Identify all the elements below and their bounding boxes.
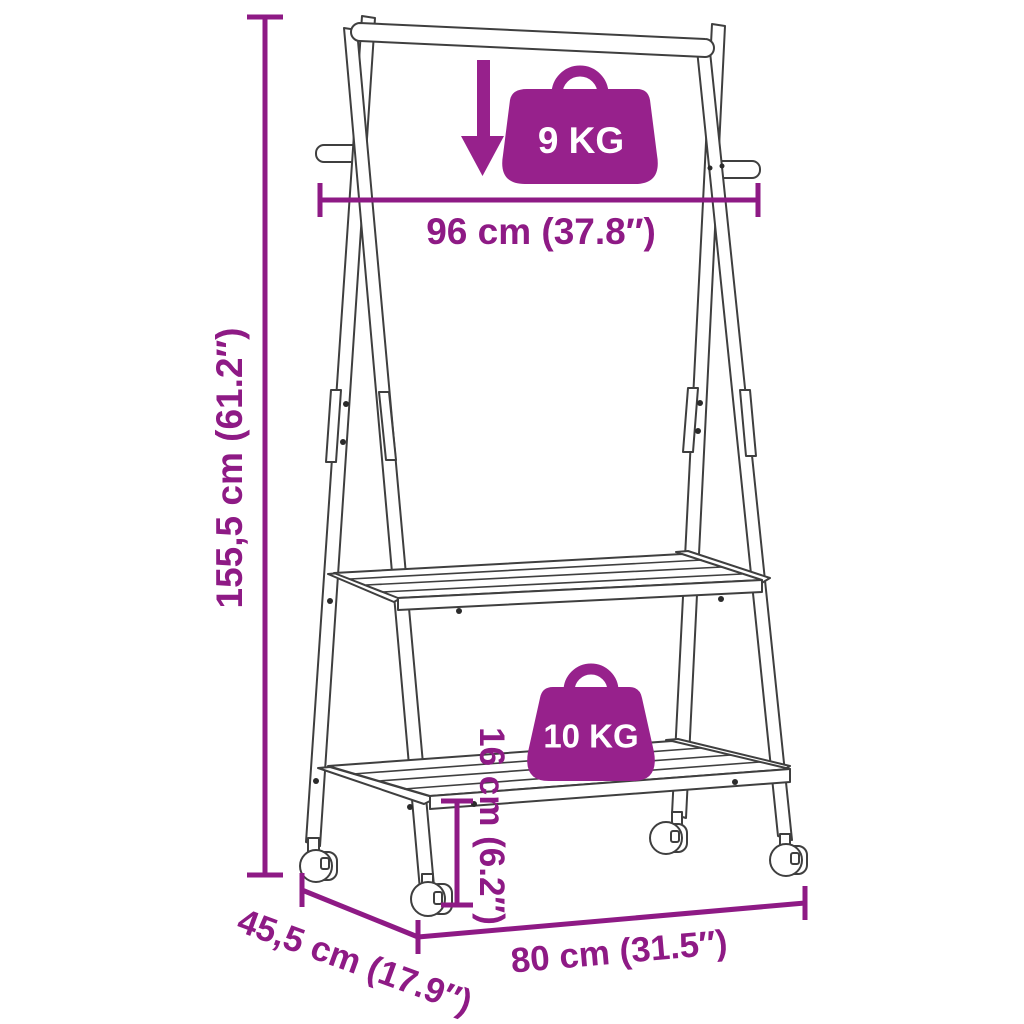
down-arrow-icon (461, 60, 504, 176)
caster-back-left (300, 838, 337, 882)
hanging-bar-width-dimension: 96 cm (37.8″) (320, 183, 758, 252)
product-diagram-canvas: 155,5 cm (61.2″) 96 cm (37.8″) 9 KG (0, 0, 1024, 1024)
rail-capacity-badge: 9 KG (461, 60, 658, 184)
caster-back-right (650, 812, 687, 854)
depth-label: 45,5 cm (17.9″) (232, 901, 477, 1022)
hanging-bar (351, 23, 714, 57)
caster-front-right (770, 834, 807, 876)
shelf-capacity-badge: 10 KG (527, 669, 655, 781)
shelf-capacity-label: 10 KG (543, 718, 638, 755)
weight-bag-icon: 9 KG (502, 71, 658, 184)
base-width-label: 80 cm (31.5″) (509, 923, 729, 981)
height-dimension-line (247, 17, 283, 875)
height-label: 155,5 cm (61.2″) (209, 327, 250, 608)
clothes-rack-diagram: 155,5 cm (61.2″) 96 cm (37.8″) 9 KG (0, 0, 1024, 1024)
weight-bag-icon-2: 10 KG (527, 669, 655, 781)
height-dimension: 155,5 cm (61.2″) (209, 17, 283, 875)
rail-capacity-label: 9 KG (538, 120, 624, 161)
caster-front-left (411, 874, 452, 916)
shelf-height-label: 16 cm (6.2″) (472, 727, 511, 925)
hanging-bar-width-label: 96 cm (37.8″) (426, 211, 656, 252)
